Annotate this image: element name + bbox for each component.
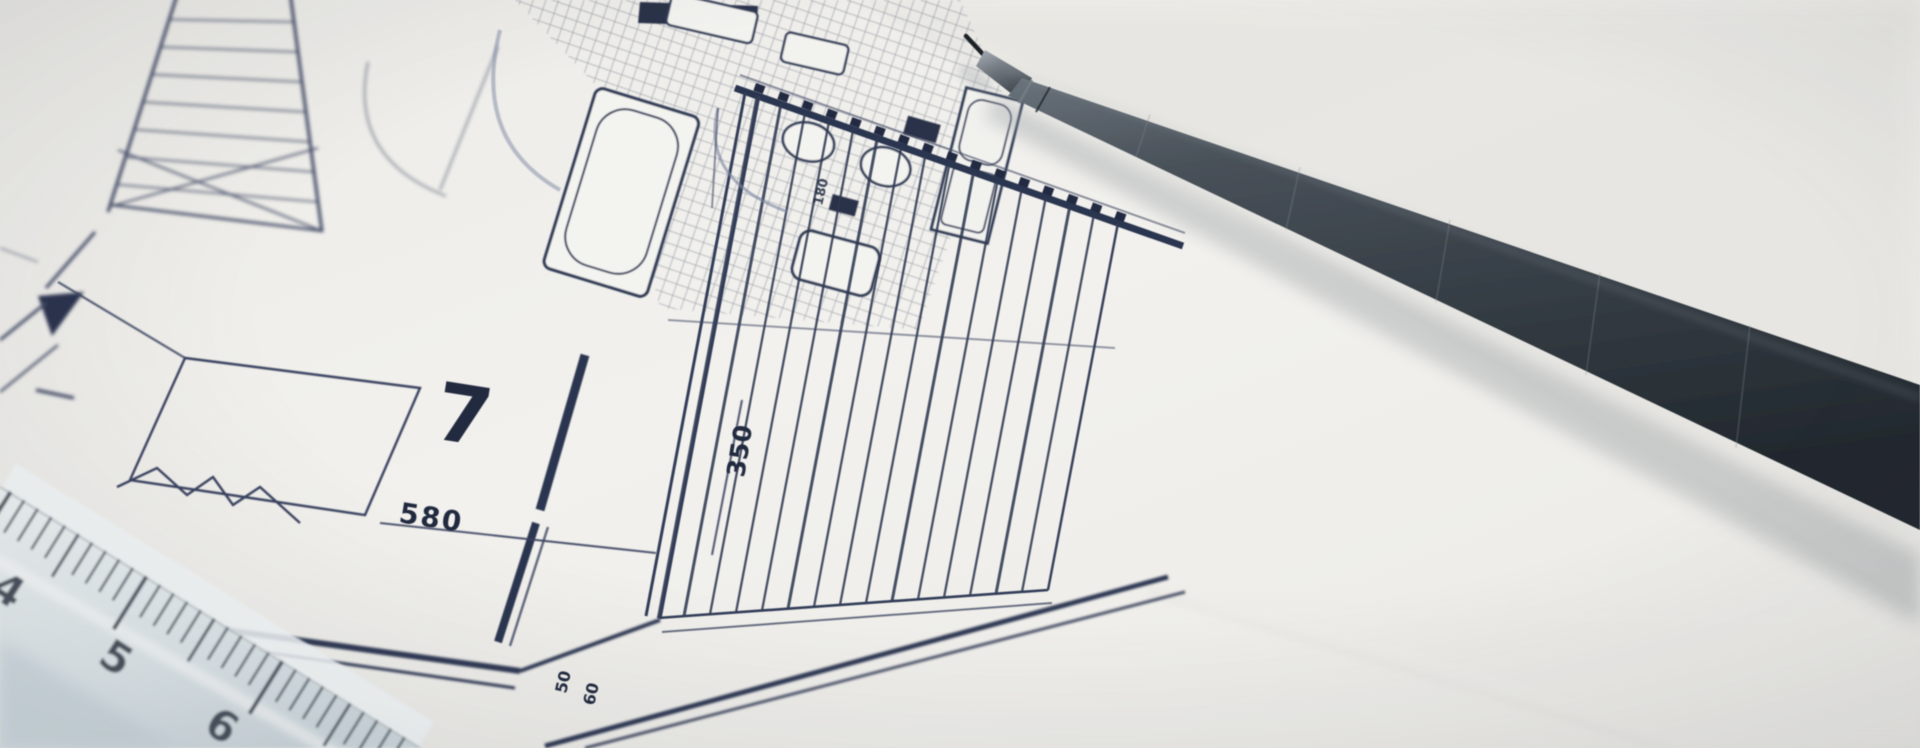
- floorplan-photo-svg: 7 580 350 180 50 60 4 5 6: [0, 0, 1920, 748]
- vignette-overlay: [0, 0, 1920, 748]
- photo-scene: 7 580 350 180 50 60 4 5 6: [0, 0, 1920, 748]
